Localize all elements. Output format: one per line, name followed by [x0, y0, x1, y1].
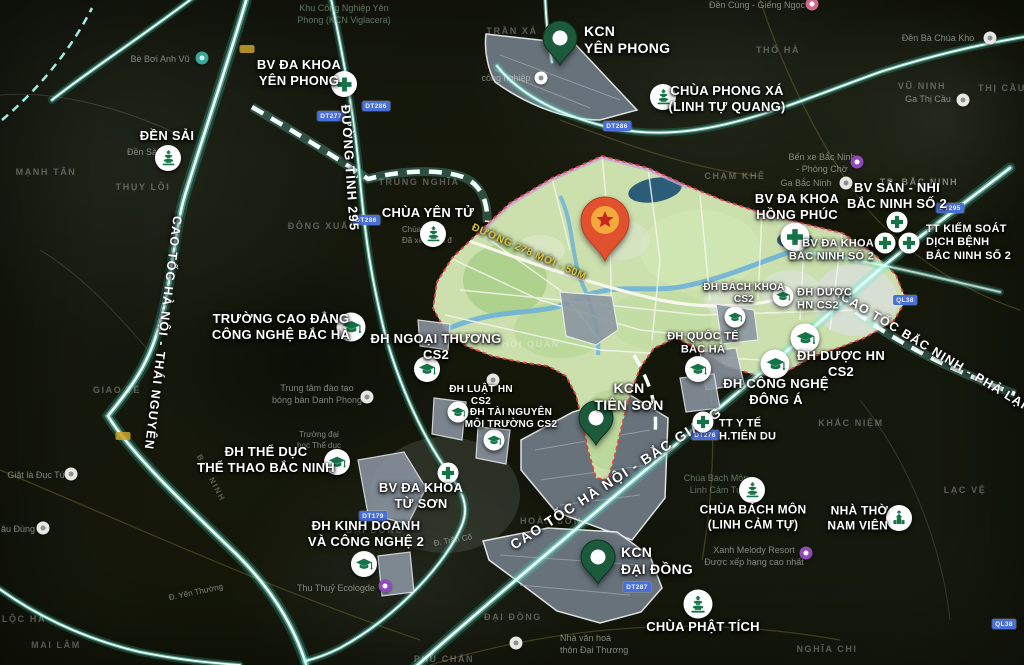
star-pin-icon — [579, 195, 631, 263]
bg-label: Xanh Melody Resort Được xếp hạng cao nhấ… — [704, 544, 804, 568]
poi-label-kcn-dai-dong: KCN ĐẠI ĐỒNG — [621, 544, 693, 578]
route-badge: DT286 — [362, 101, 390, 111]
poi-label-dh-duoc-top: ĐH DƯỢC HN CS2 — [797, 287, 852, 314]
pagoda-icon — [745, 482, 760, 498]
bg-label: công nghiệp — [481, 72, 530, 84]
poi-label-dh-luat: ĐH LUẬT HN CS2 — [449, 384, 513, 408]
university-marker[interactable] — [725, 307, 746, 328]
bg-poi-dot[interactable] — [379, 580, 392, 593]
poi-label-chua-bach-mon: CHÙA BÁCH MÔN (LINH CẢM TỰ) — [700, 502, 807, 531]
pagoda-icon — [426, 226, 441, 242]
hospital-marker[interactable] — [875, 233, 896, 254]
cross-icon — [442, 467, 455, 480]
poi-label-dh-kinh-doanh: ĐH KINH DOANH VÀ CÔNG NGHỆ 2 — [308, 518, 424, 550]
poi-label-bv-tu-son: BV ĐA KHOA TỪ SƠN — [379, 480, 463, 512]
bg-label: Bè Bơi Anh Vũ — [131, 53, 190, 65]
bg-label: TRẦN XÁ — [486, 26, 537, 36]
kcn-dai-dong-pin[interactable] — [579, 533, 617, 585]
bg-label: NGHĨA CHI — [796, 644, 857, 654]
poi-label-kcn-yen-phong: KCN YÊN PHONG — [584, 23, 670, 57]
poi-label-chua-yen-tu: CHÙA YÊN TỬ — [382, 205, 474, 221]
bg-label: LẠC VỆ — [944, 485, 987, 495]
poi-label-kcn-tien-son: KCN TIÊN SƠN — [594, 380, 663, 414]
route-shield — [240, 45, 255, 53]
graduation-cap-icon — [728, 311, 743, 323]
bg-poi-dot[interactable] — [800, 547, 813, 560]
university-marker[interactable] — [351, 551, 377, 577]
cross-icon — [697, 416, 710, 429]
road-corner-southwest — [0, 585, 240, 665]
bg-label: LỘC HÀ — [2, 614, 46, 624]
bg-label: MAI LÂM — [31, 640, 81, 650]
dashed-road-topleft — [2, 8, 92, 120]
map-geometry — [0, 0, 1024, 665]
poi-label-bv-san-nhi: BV SẢN - NHI BẮC NINH SỐ 2 — [847, 180, 947, 212]
bg-label: GIAO TẾ — [93, 385, 141, 395]
poi-label-dh-duoc-bottom: ĐH DƯỢC HN CS2 — [797, 348, 885, 380]
bg-label: THỊ CẦU — [978, 83, 1024, 93]
bg-label: KHẮC NIỆM — [818, 418, 883, 428]
bg-road — [430, 626, 840, 665]
map-pin-icon — [579, 533, 617, 585]
university-marker[interactable] — [484, 430, 505, 451]
church-marker[interactable] — [886, 505, 912, 531]
bg-label: HỒI QUAN — [502, 339, 560, 349]
graduation-cap-icon — [689, 362, 707, 377]
cross-icon — [879, 237, 892, 250]
poi-label-bv-hong-phuc: BV ĐA KHOA HỒNG PHÚC — [755, 191, 839, 223]
graduation-cap-icon — [487, 434, 502, 446]
pagoda-icon — [690, 595, 707, 613]
bg-poi-dot[interactable] — [361, 391, 374, 404]
pagoda-marker[interactable] — [684, 590, 713, 619]
bg-label: Trung tâm đào tạo bóng bàn Danh Phong — [272, 382, 362, 406]
route-badge: DT286 — [603, 121, 631, 131]
graduation-cap-icon — [355, 557, 373, 572]
church-icon — [892, 510, 906, 526]
bg-label: Đền Cùng - Giếng Ngọc — [709, 0, 805, 11]
bg-label: TRUNG NGHĨA — [378, 177, 459, 187]
bg-poi-dot[interactable] — [510, 637, 523, 650]
bg-poi-dot[interactable] — [535, 72, 548, 85]
bg-label: Đền Bà Chúa Kho — [902, 32, 975, 44]
poi-label-den-sai: ĐỀN SẢI — [140, 128, 194, 144]
pagoda-marker[interactable] — [420, 221, 446, 247]
bg-poi-dot[interactable] — [37, 522, 50, 535]
route-badge: QL38 — [992, 619, 1016, 629]
poi-label-chua-phong-xa: CHÙA PHONG XÁ (LINH TỰ QUANG) — [668, 83, 785, 115]
hospital-marker[interactable] — [693, 412, 714, 433]
bg-label: CHẠM KHÊ — [704, 171, 765, 181]
bg-poi-dot[interactable] — [196, 52, 209, 65]
graduation-cap-icon — [795, 330, 815, 346]
poi-label-dh-ngoai-thuong: ĐH NGOẠI THƯƠNG CS2 — [370, 331, 501, 363]
bg-label: THỔ HÀ — [756, 45, 800, 55]
satellite-map-canvas[interactable]: Khu Công Nghiệp Yên Phong (KCN Viglacera… — [0, 0, 1024, 665]
pagoda-marker[interactable] — [739, 477, 765, 503]
hospital-marker[interactable] — [887, 212, 908, 233]
cross-icon — [891, 216, 904, 229]
hospital-marker[interactable] — [899, 233, 920, 254]
bg-label: Bến xe Bắc Ninh - Phòng Chờ — [788, 151, 855, 175]
bg-label: THỤY LÔI — [116, 182, 171, 192]
poi-label-cd-bac-ha: TRƯỜNG CAO ĐẲNG CÔNG NGHỆ BẮC HÀ — [212, 311, 350, 343]
poi-label-dh-the-duc: ĐH THỂ DỤC THỂ THAO BẮC NINH — [197, 444, 335, 476]
bg-label: Giặt là Đục Tú — [7, 469, 64, 481]
poi-label-nha-tho-nam-vien: NHÀ THỜ NAM VIÊN — [827, 503, 888, 532]
bg-poi-dot[interactable] — [65, 468, 78, 481]
kcn-yen-phong-pin[interactable] — [541, 14, 579, 66]
pagoda-marker[interactable] — [155, 145, 181, 171]
poi-label-dh-tai-nguyen: ĐH TÀI NGUYÊN MÔI TRƯỜNG CS2 — [465, 407, 558, 431]
pagoda-icon — [161, 150, 176, 166]
bg-label: VŨ NINH — [898, 81, 946, 91]
poi-label-tt-y-te: TT Y TẾ H.TIÊN DU — [719, 418, 776, 445]
bg-label: PHÙ CHẨN — [414, 654, 474, 664]
poi-label-bv-bac-ninh-2: BV ĐA KHOA BẮC NINH SỐ 2 — [789, 238, 874, 265]
bg-label: MẠNH TÂN — [16, 167, 77, 177]
poi-label-chua-phat-tich: CHÙA PHẬT TÍCH — [646, 619, 760, 635]
poi-label-dh-bach-khoa: ĐH BÁCH KHOA CS2 — [703, 282, 784, 306]
bg-poi-dot[interactable] — [984, 32, 997, 45]
road-topleft-diagonal — [52, 0, 198, 100]
university-marker[interactable] — [761, 350, 790, 379]
poi-label-dh-dong-a: ĐH CÔNG NGHỆ ĐÔNG Á — [723, 376, 829, 408]
poi-label-dh-quoc-te: ĐH QUỐC TẾ BẮC HÀ — [667, 331, 739, 358]
cross-icon — [903, 237, 916, 250]
route-badge: QL38 — [893, 295, 917, 305]
university-marker[interactable] — [685, 356, 711, 382]
graduation-cap-icon — [418, 362, 436, 377]
poi-label-bv-yen-phong: BV ĐA KHOA YÊN PHONG — [257, 57, 341, 89]
bg-poi-dot[interactable] — [851, 156, 864, 169]
main-site-star-pin[interactable] — [579, 195, 631, 263]
bg-label: Ga Bắc Ninh — [780, 177, 831, 189]
graduation-cap-icon — [765, 356, 785, 372]
bg-label: Nhà văn hoá thôn Đại Thương — [560, 632, 628, 656]
bg-label: Ga Thị Cầu — [905, 93, 951, 105]
bg-label: âu Đùng — [1, 523, 35, 535]
route-badge: DT287 — [623, 582, 651, 592]
map-pin-icon — [541, 14, 579, 66]
bg-label: ĐẠI ĐỒNG — [484, 612, 542, 622]
bg-poi-dot[interactable] — [957, 94, 970, 107]
poi-label-tt-kiem-soat: TT KIỂM SOÁT DỊCH BỆNH BẮC NINH SỐ 2 — [926, 223, 1011, 263]
route-shield — [116, 432, 131, 440]
bg-label: Thu Thuỷ Ecologde — [297, 582, 375, 594]
bg-label: Khu Công Nghiệp Yên Phong (KCN Viglacera… — [297, 2, 390, 26]
